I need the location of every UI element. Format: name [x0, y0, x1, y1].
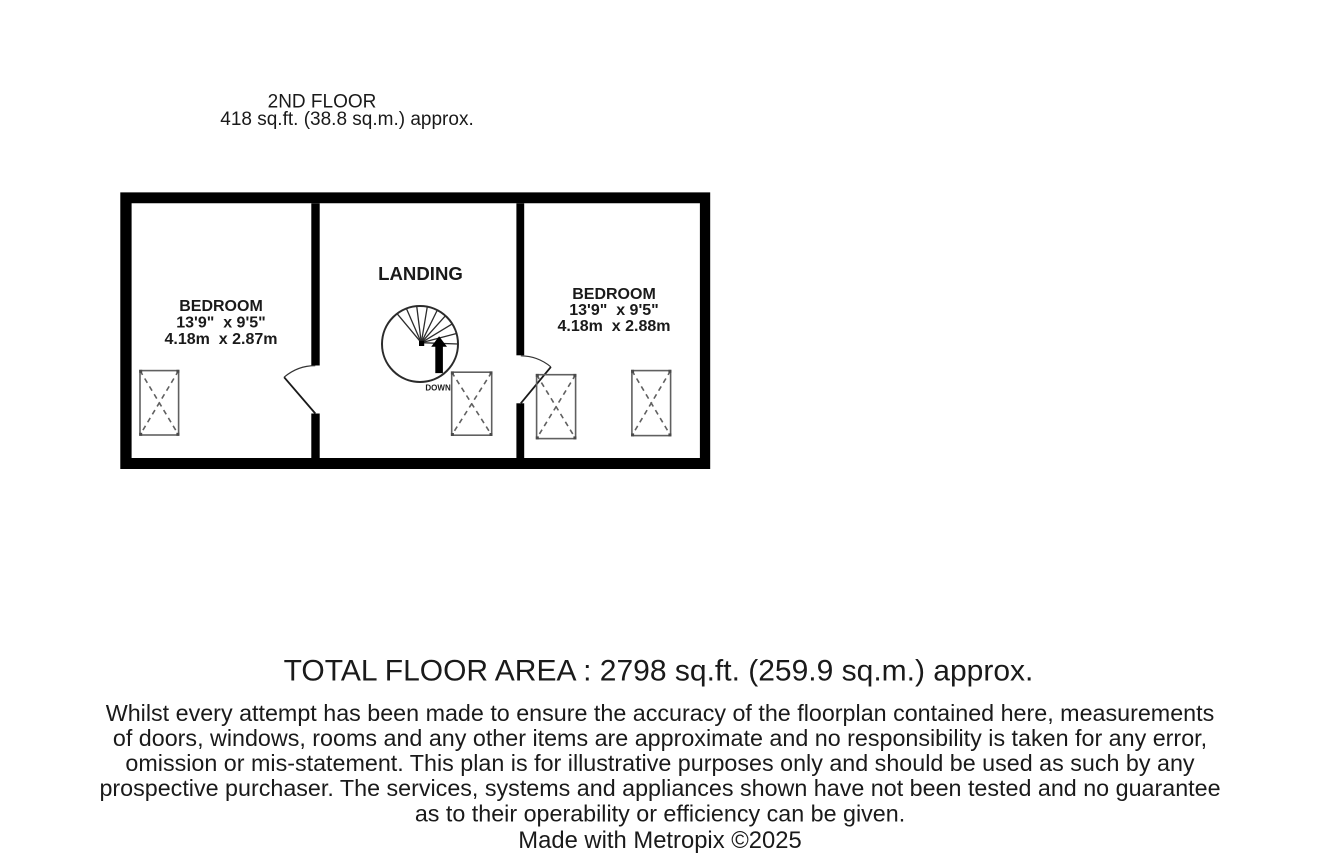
svg-text:TOTAL FLOOR AREA : 2798 sq.ft.: TOTAL FLOOR AREA : 2798 sq.ft. (259.9 sq… [284, 655, 1034, 688]
svg-text:omission or mis-statement. Thi: omission or mis-statement. This plan is … [125, 750, 1195, 776]
svg-text:418 sq.ft. (38.8 sq.m.) approx: 418 sq.ft. (38.8 sq.m.) approx. [220, 109, 473, 130]
svg-text:Made with Metropix ©2025: Made with Metropix ©2025 [518, 827, 801, 854]
svg-text:DOWN: DOWN [425, 384, 451, 393]
svg-text:BEDROOM: BEDROOM [572, 286, 656, 303]
svg-text:BEDROOM: BEDROOM [179, 298, 263, 315]
svg-text:4.18m x 2.88m: 4.18m x 2.88m [558, 318, 671, 335]
svg-text:LANDING: LANDING [378, 263, 463, 284]
svg-text:4.18m x 2.87m: 4.18m x 2.87m [165, 331, 278, 348]
svg-text:prospective purchaser. The ser: prospective purchaser. The services, sys… [99, 775, 1220, 801]
svg-text:of doors, windows, rooms and a: of doors, windows, rooms and any other i… [113, 725, 1207, 751]
svg-text:Whilst every attempt has been: Whilst every attempt has been made to en… [106, 700, 1215, 726]
svg-text:13'9" x 9'5": 13'9" x 9'5" [176, 315, 266, 332]
svg-text:as to their operability or eff: as to their operability or efficiency ca… [415, 800, 905, 826]
svg-text:13'9" x 9'5": 13'9" x 9'5" [569, 302, 659, 319]
